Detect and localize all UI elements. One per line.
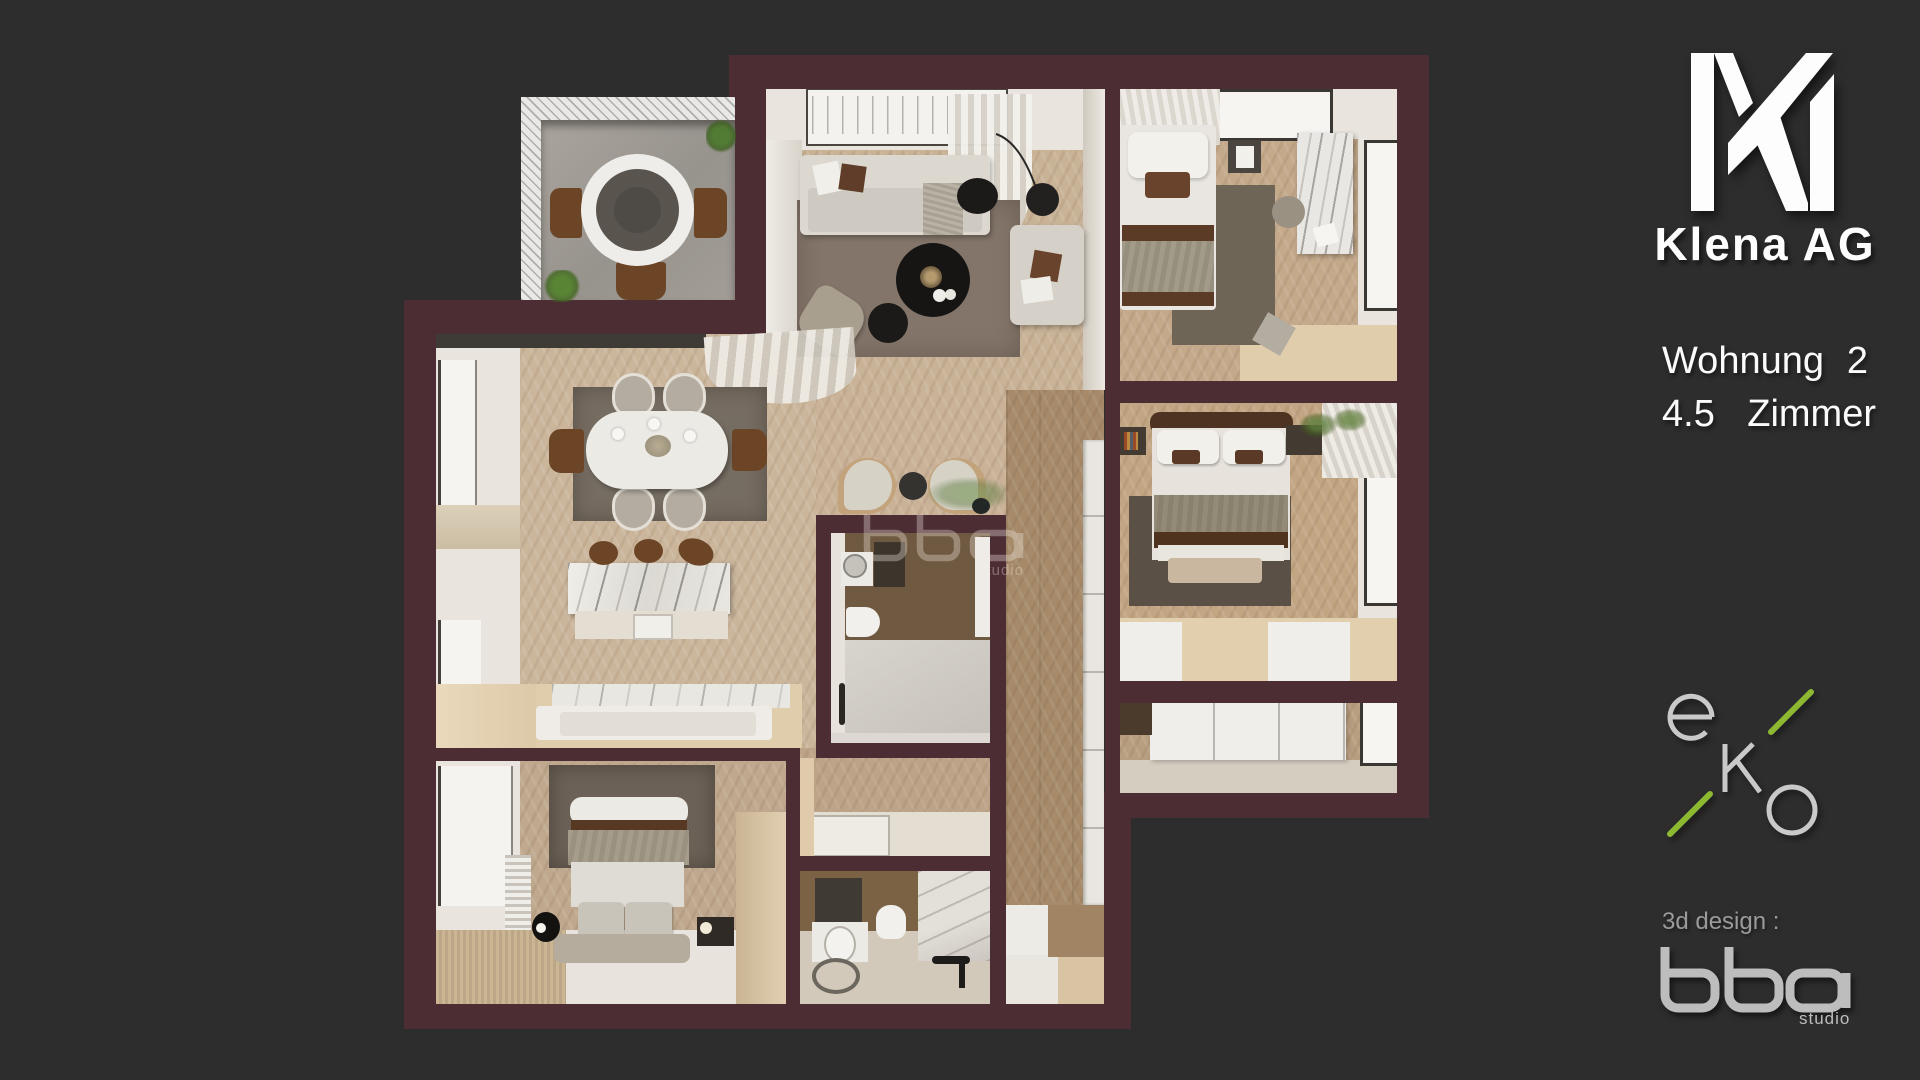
svg-text:studio: studio <box>978 562 1024 578</box>
svg-text:studio: studio <box>1799 1009 1850 1028</box>
